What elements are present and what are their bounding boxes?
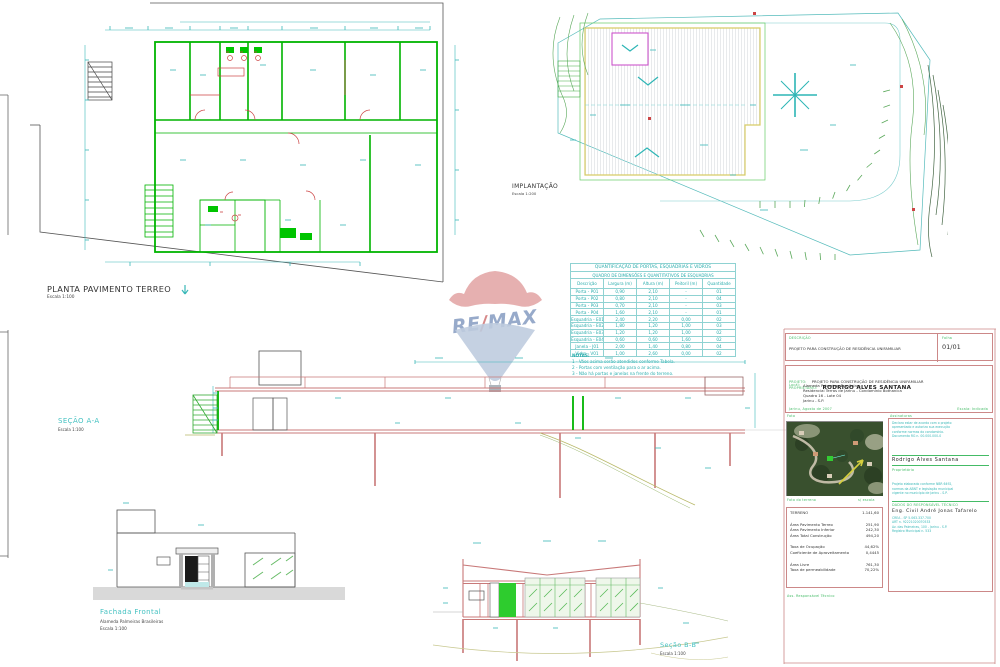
annotation-mark [775, 249, 778, 257]
schedule-cell: 2,10 [637, 309, 670, 316]
doors-and-details [190, 56, 370, 222]
section-aa-scale: Escala 1:100 [58, 427, 84, 432]
annotation-mark [883, 90, 890, 92]
area-label: Coeficiente de Aproveitamento [790, 550, 849, 556]
schedule-col-header: Altura (m) [637, 279, 670, 289]
schedule-subtitle: QUADRO DE DIMENSÕES E QUANTITATIVOS DE E… [571, 272, 736, 279]
signatures-box: Declaro estar de acordo com o projetoapr… [888, 418, 993, 592]
info-value: PROJETO PARA CONSTRUÇÃO DE RESIDÊNCIA UN… [789, 346, 934, 351]
annotation-mark [867, 163, 872, 167]
resp-header: DADOS DO RESPONSÁVEL TÉCNICO [892, 501, 989, 508]
ground-band [93, 587, 345, 600]
facade-subtitle: Alameda Palmeiras Brasileiras [100, 619, 163, 624]
schedule-cell: 02 [703, 316, 736, 323]
schedule-cell: - [670, 289, 703, 296]
small-cabinet [469, 591, 484, 600]
schedule-cell: - [670, 309, 703, 316]
titleblock-footer-label: Ass. Responsável Técnico [787, 594, 835, 599]
schedule-row: Porta - P020,802,10-04 [571, 295, 736, 302]
schedule-cell: - [670, 302, 703, 309]
schedule-cell: 1,20 [604, 329, 637, 336]
dimension-lines [213, 362, 755, 433]
fine-print-line: Documento RG n. 00.000.000-0 [892, 434, 989, 438]
schedule-cell: Esquadria - E02 [571, 322, 604, 329]
annotation-mark [858, 175, 862, 180]
annotation-mark [730, 240, 734, 247]
lot-boundary-lines [30, 3, 443, 282]
annotation-mark [745, 244, 749, 251]
schedule-cell: 0,80 [604, 295, 637, 302]
annotation-mark [874, 150, 880, 154]
schedule-cell: 04 [703, 295, 736, 302]
resp-bottom-lines: CREA - SP 5.063.337.700ART n. 9222102007… [892, 516, 989, 534]
site-plan-drawing [500, 5, 948, 260]
north-star-icon [773, 73, 817, 117]
annotation-mark [820, 253, 821, 260]
section-aa-title: SEÇÃO A-A [58, 417, 100, 425]
owner-signature-label: Proprietário [892, 468, 989, 473]
lot-marker [827, 456, 833, 461]
structure [215, 377, 745, 498]
contours-dark [928, 65, 948, 257]
owner-signature-name: Rodrigo Alves Santana [892, 458, 989, 463]
schedule-row: Esquadria - E031,201,201,0002 [571, 329, 736, 336]
site-plan-scale: Escala 1:200 [512, 191, 536, 196]
facade-title: Fachada Frontal [100, 608, 161, 616]
fine-print-line: vigente no município de Jarinu - S.P. [892, 491, 989, 495]
drawing-sheet: PLANTA PAVIMENTO TERREO Escala 1:100 [0, 0, 1000, 667]
contours-right [890, 19, 926, 245]
schedule-cell: 03 [703, 302, 736, 309]
window-band-2 [596, 578, 640, 617]
floor-plan-drawing [30, 0, 460, 310]
date-line: Jarinu, Agosto de 2007 [789, 407, 832, 412]
areas-rows: TERRENO1.141,60Área Pavimento Terreo251,… [790, 510, 879, 573]
schedule-row: Porta - P010,902,10-01 [571, 289, 736, 296]
schedule-cell: 2,10 [637, 302, 670, 309]
titleblock-info-box: DESCRIÇÃO PROJETO PARA CONSTRUÇÃO DE RES… [785, 333, 993, 361]
address-lines: Alameda Palmeiras BrasileirasResidencial… [789, 383, 989, 403]
aerial-photo-box [786, 421, 883, 496]
titleblock-project-box: PROJETO: PROJETO PARA CONSTRUÇÃO DE RESI… [785, 365, 993, 413]
schedule-cell: 1,60 [604, 309, 637, 316]
exterior-stair [88, 62, 112, 100]
schedule-cell: Esquadria - E03 [571, 329, 604, 336]
annotation-mark [760, 247, 763, 254]
left-stair [193, 395, 217, 433]
schedule-row: Porta - P041,602,10-01 [571, 309, 736, 316]
owner-lines: Declaro estar de acordo com o projetoapr… [892, 421, 989, 439]
annotation-mark [715, 235, 719, 242]
info-label: DESCRIÇÃO [789, 336, 811, 341]
schedule-cell: 1,20 [637, 329, 670, 336]
wall-light [157, 557, 170, 565]
schedule-cell: 2,10 [637, 289, 670, 296]
schedule-cell: 01 [703, 289, 736, 296]
schedule-row: Esquadria - E012,402,200,0002 [571, 316, 736, 323]
photo-header: Foto [787, 414, 795, 419]
plan-title: PLANTA PAVIMENTO TERREO [47, 284, 171, 294]
facade-scale: Escala 1:100 [100, 626, 127, 631]
area-row: Taxa de permeabilidade70,22% [790, 567, 879, 573]
scale-note: Escala: Indicada [957, 407, 988, 412]
schedule-col-header: Peitoril (m) [670, 279, 703, 289]
schedule-cell: Porta - P03 [571, 302, 604, 309]
area-value: 0,4445 [866, 550, 879, 556]
areas-box: TERRENO1.141,60Área Pavimento Terreo251,… [786, 507, 883, 588]
aerial-photo [787, 422, 883, 496]
photo-scale-note: s/ escala [858, 498, 875, 503]
schedule-row: Esquadria - E021,801,201,0003 [571, 322, 736, 329]
schedule-col-header: Quantidade [703, 279, 736, 289]
area-label: Área Total Construção [790, 533, 832, 539]
entry-door [176, 548, 218, 590]
section-bb-scale: Escala 1:100 [660, 651, 686, 656]
schedule-cell: 2,10 [637, 295, 670, 302]
address-line: Jarinu - S.P. [803, 398, 989, 403]
section-aa-drawing [185, 338, 800, 510]
area-label: TERRENO [790, 510, 808, 516]
sheet-frame-lines [0, 0, 30, 667]
schedule-title: QUANTIFICAÇÃO DE PORTAS, ESQUADRIAS E VI… [571, 264, 736, 272]
schedule-cell: 2,20 [637, 316, 670, 323]
balloon-top [449, 271, 542, 307]
site-plan-title: IMPLANTAÇÃO [512, 183, 558, 190]
schedule-cell: 2,40 [604, 316, 637, 323]
site-stair [558, 61, 580, 97]
engineer-name: Eng. Civil André Jonas Tafarelo [892, 509, 989, 514]
plan-scale: Escala 1:100 [47, 295, 75, 300]
schedule-cell: 1,00 [670, 329, 703, 336]
facade-drawing [93, 495, 348, 605]
schedule-col-header: Descrição [571, 279, 604, 289]
window-band-1 [525, 578, 585, 617]
schedule-cell: - [670, 295, 703, 302]
schedule-cell: 01 [703, 309, 736, 316]
area-row: Área Total Construção494,20 [790, 533, 879, 539]
sheet-cell: Folha 01/01 [937, 334, 994, 362]
skylight [612, 33, 648, 65]
north-arrow-icon [178, 284, 192, 298]
green-door [490, 583, 516, 617]
sheet-number: 01/01 [942, 343, 961, 351]
schedule-header-row: Descrição Largura (m) Altura (m) Peitori… [571, 279, 736, 289]
annotation-mark [819, 197, 820, 204]
annotation-mark [700, 230, 704, 237]
section-bb-title: Seção B-B [660, 641, 696, 649]
upper-volume [259, 351, 301, 385]
schedule-col-header: Largura (m) [604, 279, 637, 289]
schedule-cell: 03 [703, 322, 736, 329]
schedule-cell: 1,80 [604, 322, 637, 329]
interior-doors [253, 398, 287, 430]
schedule-cell: Porta - P01 [571, 289, 604, 296]
window-glass-marks [253, 556, 293, 579]
area-value: 70,22% [865, 567, 879, 573]
sheet-label: Folha [942, 336, 952, 341]
roof [580, 23, 765, 180]
resp-top-lines: Projeto elaborado conforme NBR 6492,norm… [892, 482, 989, 495]
area-row: Coeficiente de Aproveitamento0,4445 [790, 550, 879, 556]
fine-print-line: Registro Municipal n. 533 [892, 529, 989, 533]
annotation-mark [833, 192, 835, 199]
annotation-mark [805, 252, 806, 260]
annotation-mark [790, 251, 792, 259]
annotation-mark [879, 135, 885, 139]
area-row: TERRENO1.141,60 [790, 510, 879, 516]
annotation-mark [882, 120, 888, 123]
area-value: 1.141,60 [862, 510, 879, 516]
schedule-cell: Porta - P04 [571, 309, 604, 316]
schedule-row: Porta - P030,702,10-03 [571, 302, 736, 309]
walls [145, 42, 437, 252]
annotation-mark [883, 105, 890, 107]
photo-caption: Foto do terreno [787, 498, 816, 503]
schedule-cell: 02 [703, 329, 736, 336]
schedule-cell: 1,00 [670, 322, 703, 329]
schedule-cell: Esquadria - E01 [571, 316, 604, 323]
right-volume [705, 377, 743, 395]
area-label: Taxa de permeabilidade [790, 567, 835, 573]
schedule-cell: 0,90 [604, 289, 637, 296]
schedule-cell: 1,20 [637, 322, 670, 329]
annotation-mark [847, 185, 851, 191]
schedule-cell: 0,00 [670, 316, 703, 323]
area-value: 494,20 [866, 533, 879, 539]
schedule-cell: Porta - P02 [571, 295, 604, 302]
schedule-cell: 0,70 [604, 302, 637, 309]
